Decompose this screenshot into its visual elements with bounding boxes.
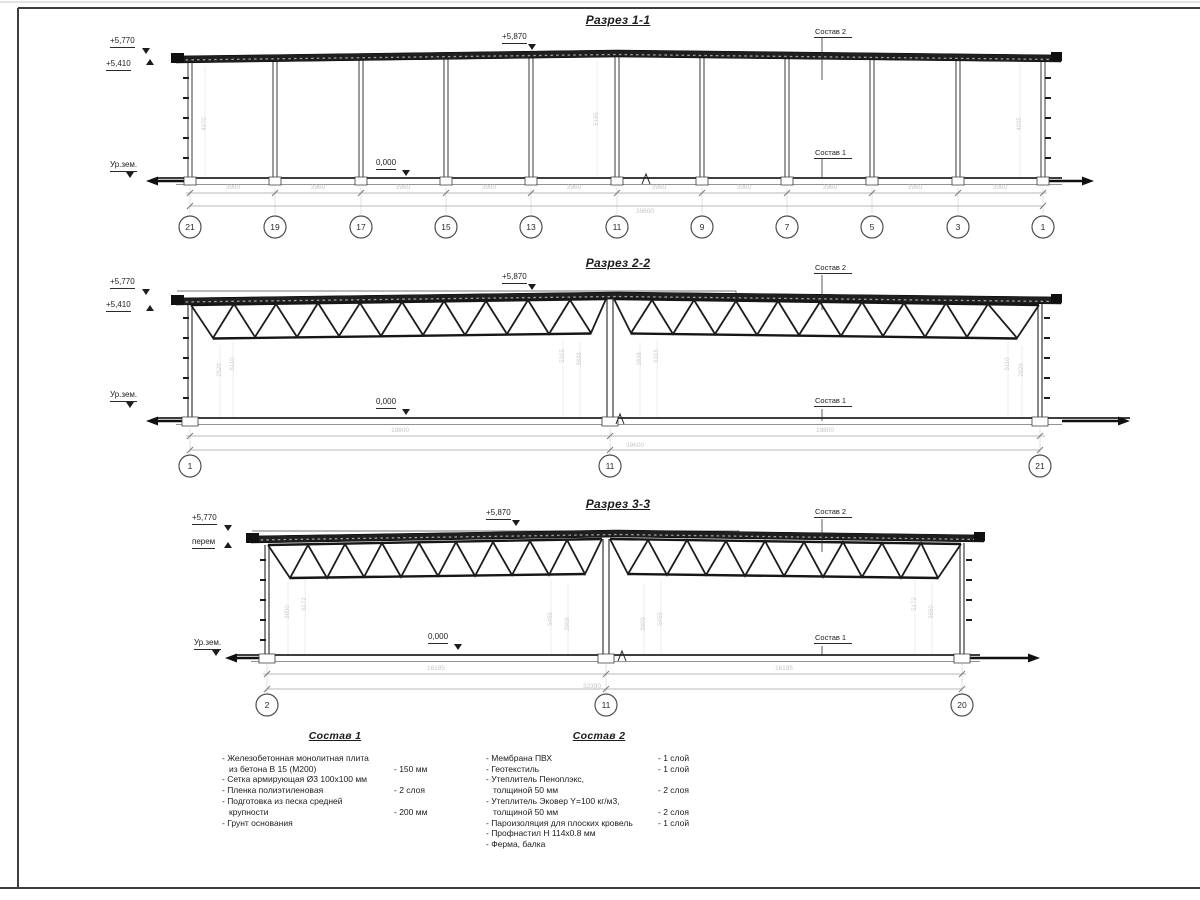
s1-bay-dim: 3960: [300, 184, 336, 192]
s1-axis-bubble: 11: [606, 216, 628, 238]
s3-total-dim: 32390: [574, 683, 610, 691]
s3-height-dim: 5455: [657, 597, 665, 641]
list-item: - Мембрана ПВХ - 1 слой: [486, 753, 712, 764]
s1-bay-dim: 3960: [641, 184, 677, 192]
s3-layer1-callout: Состав 1: [814, 633, 852, 644]
s1-axis-bubble: 9: [691, 216, 713, 238]
list-item: - Пленка полиэтиленовая - 2 слоя: [222, 785, 448, 796]
s1-bay-dim: 3960: [471, 184, 507, 192]
s2-layer1-callout: Состав 1: [814, 396, 852, 407]
s2-zero-level: 0,000: [376, 397, 396, 409]
s3-zero-level: 0,000: [428, 632, 448, 644]
s1-bay-dim: 3960: [982, 184, 1018, 192]
s1-total-dim: 39600: [627, 208, 663, 216]
s2-layer2-callout: Состав 2: [814, 263, 852, 274]
drawing-page: Разрез 1-1 +5,770 +5,410 Ур.зем. 0,000 +…: [0, 0, 1200, 900]
s1-axis-bubble: 1: [1032, 216, 1054, 238]
s3-elev-variable: перем: [192, 537, 215, 549]
s1-bay-dim: 3960: [215, 184, 251, 192]
section1-linework: [126, 38, 1094, 238]
s3-ground-label: Ур.зем.: [194, 638, 221, 650]
list-item: - Грунт основания: [222, 818, 448, 829]
s3-layer2-callout: Состав 2: [814, 507, 852, 518]
sostav2-block: Состав 2 - Мембрана ПВХ - 1 слой - Геоте…: [486, 731, 712, 850]
s2-height-dim: 2529: [216, 348, 224, 392]
s2-height-dim: 5315: [653, 334, 661, 378]
list-item: - Подготовка из песка среднейкрупности -…: [222, 796, 448, 818]
s3-height-dim: 3650: [284, 590, 292, 634]
s3-axis-bubble: 11: [595, 694, 617, 716]
list-item: - Железобетонная монолитная плитаиз бето…: [222, 753, 448, 775]
list-item: - Утеплитель Пеноплэкс,толщиной 50 мм - …: [486, 774, 712, 796]
s1-axis-bubble: 15: [435, 216, 457, 238]
s2-height-dim: 3838: [636, 337, 644, 381]
s1-axis-bubble: 7: [776, 216, 798, 238]
s1-zero-level: 0,000: [376, 158, 396, 170]
s1-elev-roof: +5,410: [106, 59, 131, 71]
s3-axis-bubble: 20: [951, 694, 973, 716]
list-item: - Геотекстиль - 1 слой: [486, 764, 712, 775]
s2-elev-peak: +5,870: [502, 272, 527, 284]
s3-half-dim: 16195: [418, 665, 454, 673]
sostav2-title: Состав 2: [486, 731, 712, 742]
list-item: - Пароизоляция для плоских кровель - 1 с…: [486, 818, 712, 829]
s3-elev-parapet: +5,770: [192, 513, 217, 525]
s1-bay-dim: 3960: [385, 184, 421, 192]
s3-height-dim: 5172: [911, 582, 919, 626]
section3-title: Разрез 3-3: [558, 497, 678, 511]
s3-axis-bubble: 2: [256, 694, 278, 716]
s1-height-dim: 5195: [593, 97, 601, 141]
section2-title: Разрез 2-2: [558, 256, 678, 270]
list-item: - Ферма, балка: [486, 839, 712, 850]
s1-axis-bubble: 21: [179, 216, 201, 238]
s1-height-dim: 4970: [201, 102, 209, 146]
s1-ground-label: Ур.зем.: [110, 160, 137, 172]
s3-elev-peak: +5,870: [486, 508, 511, 520]
s2-half-dim: 19800: [807, 427, 843, 435]
truss-s2-left: [191, 299, 606, 339]
roof-slab-s3: [251, 530, 984, 543]
truss-s2-right: [614, 299, 1039, 339]
sostav1-block: Состав 1 - Железобетонная монолитная пли…: [222, 731, 448, 828]
list-item: - Утеплитель Эковер Y=100 кг/м3,толщиной…: [486, 796, 712, 818]
s2-height-dim: 2929: [1018, 348, 1026, 392]
s3-height-dim: 5455: [547, 597, 555, 641]
s2-height-dim: 3838: [576, 337, 584, 381]
s2-half-dim: 19800: [382, 427, 418, 435]
s3-height-dim: 5172: [301, 582, 309, 626]
s1-axis-bubble: 5: [861, 216, 883, 238]
s1-bay-dim: 3960: [897, 184, 933, 192]
s1-elev-peak: +5,870: [502, 32, 527, 44]
sostav1-title: Состав 1: [222, 731, 448, 742]
s3-height-dim: 3650: [928, 590, 936, 634]
s2-axis-bubble: 21: [1029, 455, 1051, 477]
s3-height-dim: 3909: [640, 602, 648, 646]
s1-axis-bubble: 3: [947, 216, 969, 238]
s1-layer2-callout: Состав 2: [814, 27, 852, 38]
s2-total-dim: 39600: [617, 442, 653, 450]
s1-axis-bubble: 17: [350, 216, 372, 238]
s1-layer1-callout: Состав 1: [814, 148, 852, 159]
s1-axis-bubble: 13: [520, 216, 542, 238]
s2-axis-bubble: 1: [179, 455, 201, 477]
s2-height-dim: 5110: [229, 342, 237, 386]
s2-axis-bubble: 11: [599, 455, 621, 477]
s2-height-dim: 5315: [559, 334, 567, 378]
section1-title: Разрез 1-1: [558, 13, 678, 27]
s1-bay-dim: 3960: [812, 184, 848, 192]
s1-elev-parapet: +5,770: [110, 36, 135, 48]
s3-half-dim: 16195: [766, 665, 802, 673]
truss-s3-right: [610, 539, 961, 578]
s2-ground-label: Ур.зем.: [110, 390, 137, 402]
truss-s3-left: [268, 539, 602, 578]
s2-elev-parapet: +5,770: [110, 277, 135, 289]
s3-height-dim: 3909: [564, 602, 572, 646]
list-item: - Профнастил Н 114х0.8 мм: [486, 828, 712, 839]
list-item: - Сетка армирующая Ø3 100х100 мм: [222, 774, 448, 785]
s1-height-dim: 4935: [1016, 102, 1024, 146]
s2-height-dim: 5110: [1004, 342, 1012, 386]
s2-elev-roof: +5,410: [106, 300, 131, 312]
s1-axis-bubble: 19: [264, 216, 286, 238]
s1-bay-dim: 3960: [556, 184, 592, 192]
s1-bay-dim: 3960: [726, 184, 762, 192]
